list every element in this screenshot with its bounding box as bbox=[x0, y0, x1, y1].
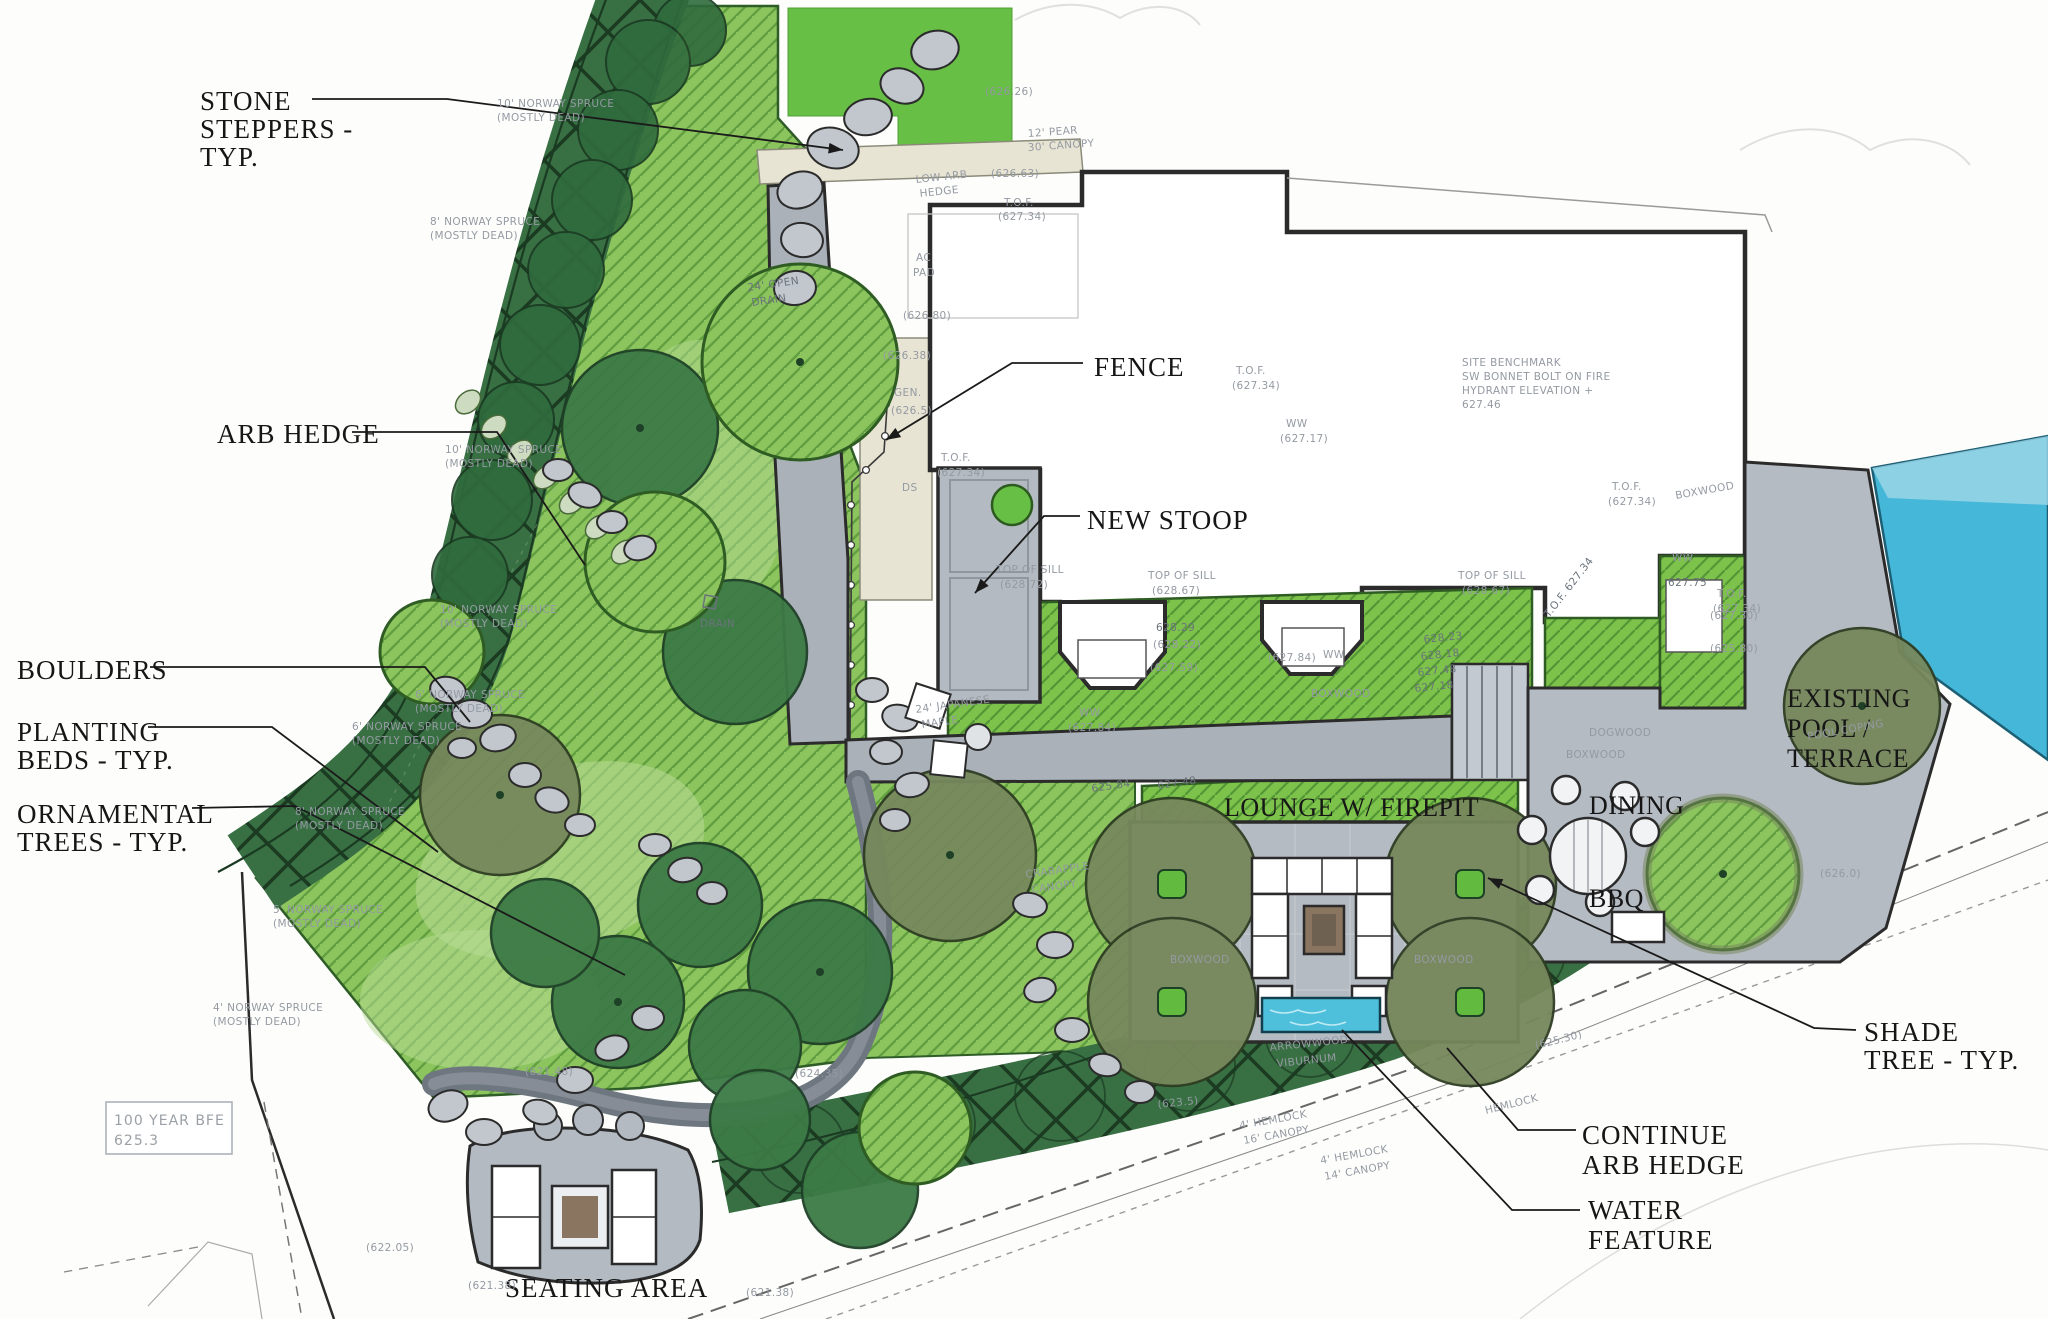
note-spruce: 8' NORWAY SPRUCE bbox=[430, 216, 540, 228]
label-water-feature: FEATURE bbox=[1588, 1225, 1714, 1255]
label-water-feature: WATER bbox=[1588, 1195, 1683, 1225]
note-boxwood: BOXWOOD bbox=[1566, 749, 1626, 761]
note-elev: (626.5) bbox=[891, 405, 932, 417]
note-tof: T.O.F. bbox=[1235, 365, 1266, 377]
note-sill: TOP OF SILL bbox=[1457, 570, 1526, 582]
note-elev: (626.26) bbox=[985, 86, 1033, 98]
note-sill: TOP OF SILL bbox=[1147, 570, 1216, 582]
label-planting-beds: PLANTING bbox=[17, 717, 160, 747]
note-dogwood: DOGWOOD bbox=[1589, 727, 1651, 739]
bfe-box: 100 YEAR BFE 625.3 bbox=[106, 1102, 232, 1154]
note-spot-elev: 628.29 bbox=[1156, 622, 1195, 634]
existing-wall-faint bbox=[1287, 178, 1772, 232]
note-elev: (626.38) bbox=[883, 350, 931, 362]
note-ac-pad: PAD bbox=[913, 267, 935, 279]
pool-shallow-sheen bbox=[1872, 436, 2048, 505]
label-stone-steppers: STONE bbox=[200, 86, 292, 116]
label-lounge-firepit: LOUNGE W/ FIREPIT bbox=[1224, 793, 1479, 822]
label-shade-tree: SHADE bbox=[1864, 1017, 1959, 1047]
note-elev: (626.80) bbox=[903, 310, 951, 322]
label-existing-pool: EXISTING bbox=[1787, 684, 1911, 713]
note-spruce-dead: (MOSTLY DEAD) bbox=[415, 703, 503, 715]
note-elev: (621.38) bbox=[746, 1287, 794, 1299]
note-spruce-dead: (MOSTLY DEAD) bbox=[295, 820, 383, 832]
note-tof-elev: (627.34) bbox=[1232, 380, 1280, 392]
note-window-well: WW bbox=[1323, 649, 1345, 661]
note-tof-elev: (627.34) bbox=[937, 467, 985, 479]
note-elev: (626.0) bbox=[1820, 868, 1861, 880]
setback-line bbox=[64, 1247, 198, 1272]
note-spruce: 10' NORWAY SPRUCE bbox=[445, 444, 562, 456]
note-spruce: 10' NORWAY SPRUCE bbox=[440, 604, 557, 616]
label-bfe-elevation: 625.3 bbox=[114, 1133, 159, 1149]
note-hemlock: HEMLOCK bbox=[1484, 1092, 1540, 1117]
label-arb-hedge: ARB HEDGE bbox=[217, 419, 380, 449]
note-ww-elev: 627.75 bbox=[1668, 577, 1707, 589]
note-spruce: 8' NORWAY SPRUCE bbox=[295, 806, 405, 818]
note-pear: 12' PEAR bbox=[1027, 125, 1078, 140]
note-elev: (622.05) bbox=[366, 1242, 414, 1254]
note-boxwood: BOXWOOD bbox=[1170, 954, 1230, 966]
label-100yr-bfe: 100 YEAR BFE bbox=[114, 1113, 225, 1129]
note-spruce-dead: (MOSTLY DEAD) bbox=[445, 458, 533, 470]
note-spruce-dead: (MOSTLY DEAD) bbox=[497, 112, 585, 124]
stoop-shrub bbox=[992, 485, 1032, 525]
note-elev: (625.80) bbox=[1710, 643, 1758, 655]
revision-cloud bbox=[1740, 129, 1970, 165]
note-window-well: WW bbox=[1079, 707, 1101, 719]
note-spruce: 10' NORWAY SPRUCE bbox=[497, 98, 614, 110]
note-ww-elev: (627.84) bbox=[1268, 652, 1316, 664]
fire-table-inner bbox=[562, 1196, 598, 1238]
firepit-inner bbox=[1312, 914, 1336, 946]
note-generator: GEN. bbox=[894, 387, 922, 399]
label-ornamental-trees: ORNAMENTAL bbox=[17, 799, 214, 829]
label-dining: DINING bbox=[1589, 791, 1684, 820]
label-stone-steppers: TYP. bbox=[200, 142, 259, 172]
note-ac-pad: AC bbox=[916, 252, 931, 264]
label-stone-steppers: STEPPERS - bbox=[200, 114, 353, 144]
note-spot-elev: (627.59) bbox=[1150, 662, 1198, 674]
note-downspout: DS bbox=[902, 482, 918, 494]
note-boxwood: BOXWOOD bbox=[1414, 954, 1474, 966]
note-window-well: WW bbox=[1672, 552, 1694, 564]
note-tof: T.O.F. bbox=[1003, 197, 1034, 209]
note-elev: (624.35) bbox=[795, 1068, 843, 1080]
note-ww-elev: (627.17) bbox=[1280, 433, 1328, 445]
note-ww-elev: (627.84) bbox=[1068, 722, 1116, 734]
water-feature-basin bbox=[1262, 998, 1380, 1032]
note-tof-elev: (627.34) bbox=[998, 211, 1046, 223]
label-planting-beds: BEDS - TYP. bbox=[17, 745, 174, 775]
note-spruce-dead: (MOSTLY DEAD) bbox=[352, 735, 440, 747]
label-boulders: BOULDERS bbox=[17, 655, 168, 685]
label-continue-arb: ARB HEDGE bbox=[1582, 1150, 1745, 1180]
note-spruce: 5' NORWAY SPRUCE bbox=[273, 904, 383, 916]
note-spruce: 6' NORWAY SPRUCE bbox=[415, 689, 525, 701]
note-benchmark: SW BONNET BOLT ON FIRE bbox=[1462, 371, 1611, 383]
note-sill: TOP OF SILL bbox=[995, 564, 1064, 576]
note-low-arb: HEDGE bbox=[919, 184, 959, 200]
note-window-well: WW bbox=[1286, 418, 1308, 430]
note-spruce-dead: (MOSTLY DEAD) bbox=[273, 918, 361, 930]
note-elev: (626.63) bbox=[991, 168, 1039, 180]
note-benchmark: 627.46 bbox=[1462, 399, 1501, 411]
patio-boulder bbox=[573, 1105, 603, 1135]
note-spruce-dead: (MOSTLY DEAD) bbox=[440, 618, 528, 630]
note-boxwood: BOXWOOD bbox=[1311, 688, 1371, 700]
note-spruce-dead: (MOSTLY DEAD) bbox=[430, 230, 518, 242]
note-elev: (621.38) bbox=[468, 1280, 516, 1292]
note-sill-elev: (628.67) bbox=[1152, 585, 1200, 597]
note-spruce-dead: (MOSTLY DEAD) bbox=[213, 1016, 301, 1028]
note-spot-elev: (628.22) bbox=[1153, 639, 1201, 651]
label-ornamental-trees: TREES - TYP. bbox=[17, 827, 188, 857]
label-bbq: BBQ bbox=[1589, 884, 1644, 913]
note-spruce: 4' NORWAY SPRUCE bbox=[213, 1002, 323, 1014]
note-benchmark: SITE BENCHMARK bbox=[1462, 357, 1562, 369]
foundation-bed-dining bbox=[1545, 618, 1660, 692]
note-ww-elev: (627.30) bbox=[1710, 610, 1758, 622]
note-tof: T.O.F. bbox=[1716, 588, 1747, 600]
note-sill-elev: (628.67) bbox=[1462, 585, 1510, 597]
window-well bbox=[1078, 640, 1146, 678]
note-sill-elev: (628.72) bbox=[1000, 579, 1048, 591]
label-new-stoop: NEW STOOP bbox=[1087, 505, 1249, 535]
note-spruce: 6' NORWAY SPRUCE bbox=[352, 721, 462, 733]
label-fence: FENCE bbox=[1094, 352, 1185, 382]
patio-boulder bbox=[616, 1112, 644, 1140]
label-shade-tree: TREE - TYP. bbox=[1864, 1045, 2019, 1075]
note-tof: T.O.F. bbox=[1611, 481, 1642, 493]
note-elev: (621.48) bbox=[525, 1066, 573, 1078]
landscape-plan-sheet: STONE STEPPERS - TYP. ARB HEDGE BOULDERS… bbox=[0, 0, 2048, 1319]
label-continue-arb: CONTINUE bbox=[1582, 1120, 1728, 1150]
site-plan-drawing: STONE STEPPERS - TYP. ARB HEDGE BOULDERS… bbox=[0, 0, 2048, 1319]
steps-to-dining bbox=[1452, 664, 1528, 780]
label-seating-area: SEATING AREA bbox=[505, 1273, 708, 1303]
note-drain: DRAIN bbox=[700, 618, 735, 630]
note-benchmark: HYDRANT ELEVATION + bbox=[1462, 385, 1593, 397]
note-tof-elev: (627.34) bbox=[1608, 496, 1656, 508]
revision-cloud bbox=[1015, 5, 1200, 25]
bbq-grill bbox=[1612, 912, 1664, 942]
label-existing-pool: TERRACE bbox=[1787, 744, 1909, 773]
note-tof: T.O.F. bbox=[940, 452, 971, 464]
